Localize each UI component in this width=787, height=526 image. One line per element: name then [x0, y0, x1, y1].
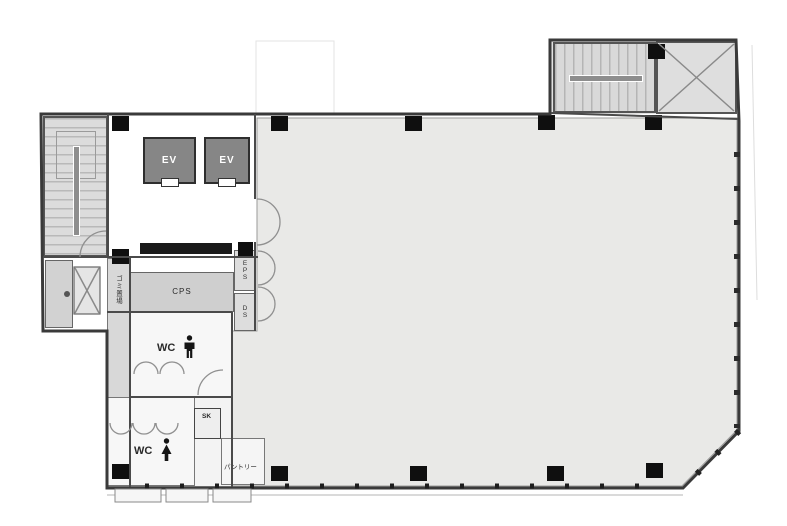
annex-boxes — [115, 489, 251, 502]
elevator-1-label: EV — [162, 155, 177, 166]
cps-label: CPS — [172, 288, 191, 296]
elevator-2: EV — [204, 137, 250, 184]
stair-rail — [73, 146, 80, 236]
storage-room — [45, 260, 73, 328]
wall-segment — [140, 243, 232, 254]
garbage-storage-label: ゴミ置場 — [114, 275, 121, 305]
staircase-icon — [553, 42, 656, 113]
eps-label: EPS — [242, 260, 249, 281]
column — [112, 249, 129, 264]
elevator-door-icon — [218, 178, 236, 187]
elevator-2-label: EV — [219, 155, 234, 166]
female-figure-icon — [160, 438, 173, 463]
sk-closet: SK — [194, 408, 221, 439]
column — [645, 115, 662, 130]
column — [538, 115, 555, 130]
small-shaft — [74, 267, 100, 314]
ds-label: DS — [242, 305, 249, 319]
chamfer-wall-ticks — [683, 431, 739, 488]
ds-shaft: DS — [234, 293, 256, 331]
pantry-room: パントリー — [221, 438, 265, 485]
column — [112, 464, 129, 479]
column — [547, 466, 564, 481]
wc-men-label: WC — [157, 343, 175, 354]
column — [271, 116, 288, 131]
pantry-label: パントリー — [224, 465, 257, 472]
floor-plan: ゴミ置場 CPS EPS DS WC WC SK パントリー EV — [0, 0, 787, 526]
elevator-1: EV — [143, 137, 196, 184]
column — [405, 116, 422, 131]
elevator-door-icon — [161, 178, 179, 187]
column — [648, 44, 665, 59]
column — [112, 116, 129, 131]
property-line — [752, 45, 757, 300]
staircase-icon — [43, 116, 108, 257]
machine-shaft — [657, 42, 736, 113]
column — [410, 466, 427, 481]
void-area — [256, 41, 334, 113]
column — [238, 242, 253, 257]
stair-rail — [569, 75, 643, 82]
column — [646, 463, 663, 478]
cps-room: CPS — [130, 272, 234, 312]
wc-men-room: WC — [130, 312, 232, 397]
column — [271, 466, 288, 481]
male-figure-icon — [183, 335, 196, 360]
wc-women-label: WC — [134, 446, 152, 457]
sk-label: SK — [202, 414, 211, 421]
door-knob-icon — [64, 291, 70, 297]
